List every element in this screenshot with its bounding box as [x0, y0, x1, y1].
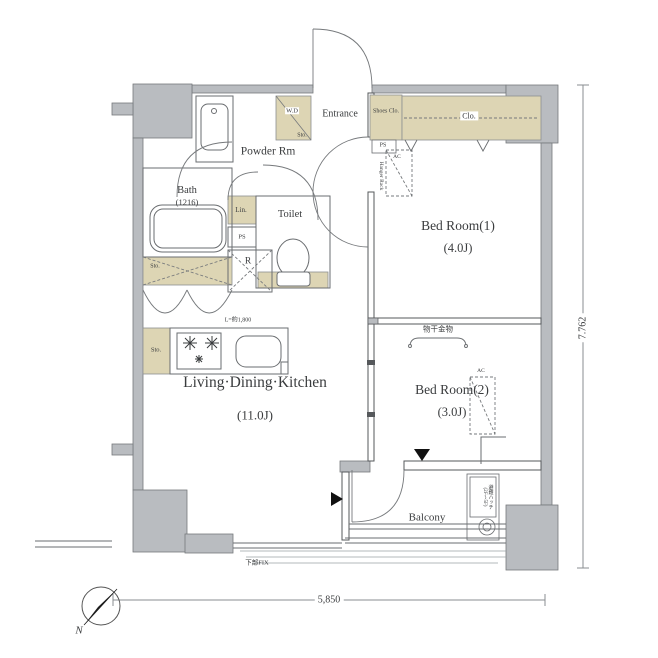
label-sto-ldk: Sto.	[151, 346, 161, 353]
hatch-drain	[479, 519, 495, 535]
label-ldk: Living·Dining·Kitchen	[183, 374, 327, 392]
stove	[177, 333, 221, 369]
north-arrow-icon	[82, 587, 120, 625]
floor-plan-canvas: Powder Rm Bath (1216) Lin. PS Toilet R W…	[0, 0, 658, 658]
label-bath: Bath	[177, 185, 197, 197]
bedroom2-step	[481, 437, 506, 464]
closet-door-left	[143, 290, 187, 313]
label-ldk-size: (11.0J)	[237, 409, 273, 424]
label-refrigerator: R	[245, 257, 251, 268]
partition-track-mark	[367, 360, 375, 365]
faucet	[212, 109, 217, 114]
triangle-right-marker	[331, 492, 343, 506]
label-linen: Lin.	[235, 206, 246, 214]
triangle-down-marker	[414, 449, 430, 461]
label-fix-window: 下部FIX	[245, 559, 268, 566]
label-bedroom1: Bed Room(1)	[421, 218, 495, 234]
wall-stub-top-left	[112, 103, 133, 115]
balcony-lines	[35, 524, 506, 548]
label-escape-hatch-sub: (2F〜5F)	[482, 485, 488, 510]
shoes-closet	[370, 95, 402, 140]
balcony-door-swing	[352, 470, 404, 522]
label-dimension-width: 5,850	[315, 594, 344, 606]
label-bath-size: (1216)	[176, 198, 199, 208]
label-sto-bath: Sto.	[150, 264, 160, 271]
kitchen-sink	[236, 336, 281, 367]
label-shoes-closet: Shoes Clo.	[373, 109, 399, 116]
column-bottom-right	[506, 505, 558, 570]
top-wall-right	[372, 85, 506, 93]
label-escape-hatch: 避難ハッチ (2F〜5F)	[482, 485, 493, 510]
label-ac2: AC	[477, 368, 485, 374]
label-laundry-hardware: 物干金物	[423, 326, 453, 335]
column-bottom-left	[133, 490, 187, 552]
closet-door-right	[187, 290, 232, 313]
label-sto-wd: Sto.	[297, 133, 307, 140]
label-ps-entrance: PS	[380, 143, 387, 150]
label-entrance: Entrance	[322, 108, 358, 120]
interior-walls	[342, 93, 541, 540]
label-balcony: Balcony	[409, 512, 446, 525]
balcony-hatch	[240, 551, 506, 563]
label-dimension-height: 7.762	[577, 314, 589, 343]
label-toilet: Toilet	[278, 209, 302, 221]
label-kitchen-length: L=約1,800	[225, 318, 252, 325]
toilet-bowl	[277, 239, 309, 277]
label-bedroom1-size: (4.0J)	[444, 241, 473, 255]
label-closet: Clo.	[460, 111, 478, 120]
top-wall-left	[192, 85, 313, 93]
label-washer-dryer: W.D	[285, 107, 299, 114]
wall-end-block	[368, 318, 378, 324]
entrance-door-swing	[313, 29, 372, 88]
label-powder-room: Powder Rm	[239, 145, 297, 158]
label-escape-hatch-main: 避難ハッチ	[487, 485, 493, 510]
balcony-wall-block	[340, 461, 370, 472]
label-ac1: AC	[393, 154, 401, 160]
label-ps-powder: PS	[238, 233, 245, 240]
column-top-left	[133, 84, 192, 138]
bedroom1-door-swing	[313, 137, 368, 247]
laundry-bracket	[409, 338, 468, 348]
toilet-tank	[277, 272, 310, 286]
floorplan-drawing	[0, 0, 658, 658]
label-bedroom2: Bed Room(2)	[415, 382, 489, 398]
partition-track-mark	[367, 412, 375, 417]
label-bedroom2-size: (3.0J)	[438, 405, 467, 419]
wall-stub-bottom-left	[112, 444, 133, 455]
bathtub-inner	[154, 209, 222, 248]
closet-hooks	[405, 140, 489, 151]
column-bottom-left-step	[185, 534, 233, 553]
left-wall	[133, 138, 143, 490]
right-wall	[541, 143, 552, 505]
label-hanger-rack: Hanger Rack	[378, 162, 384, 191]
bedroom2-window	[404, 461, 541, 470]
label-north: N	[75, 625, 82, 638]
